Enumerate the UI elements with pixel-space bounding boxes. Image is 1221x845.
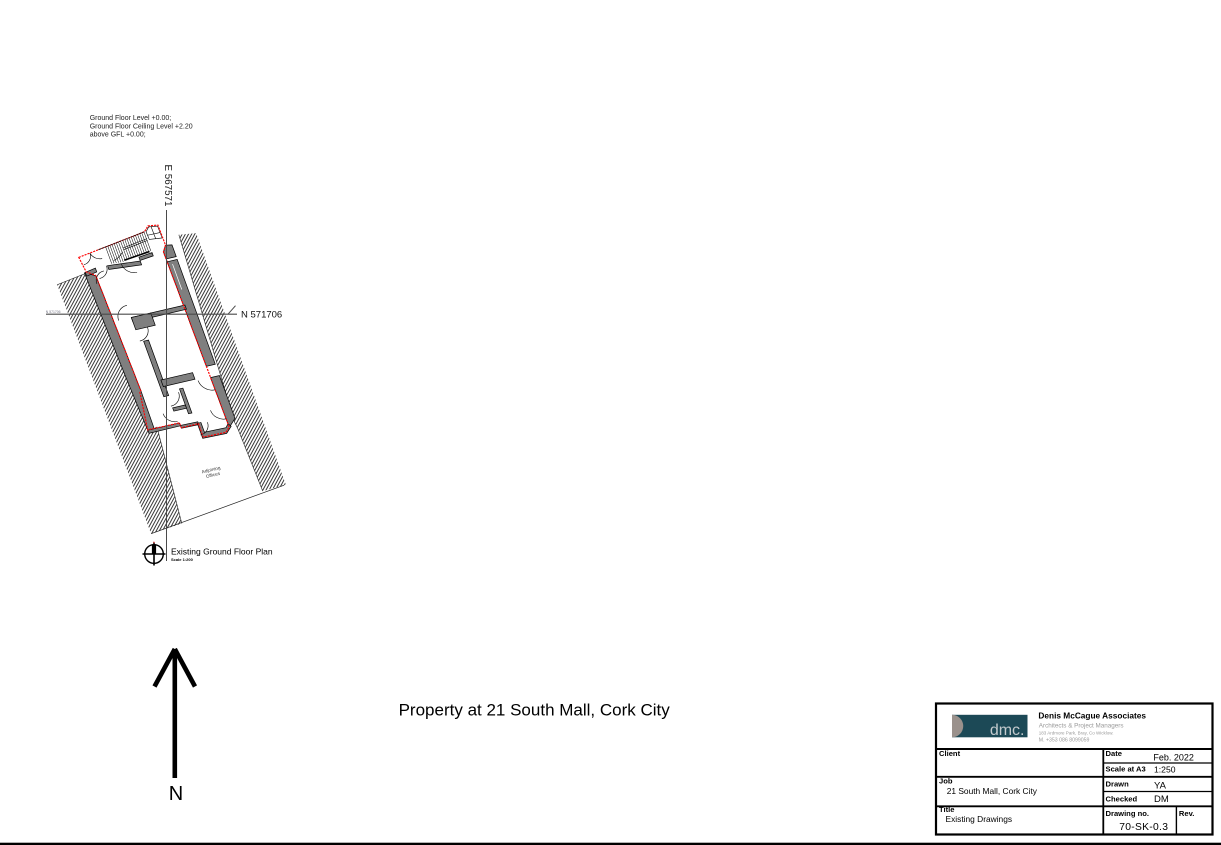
svg-text:Title: Title [939, 805, 954, 814]
svg-text:Existing Ground Floor Plan: Existing Ground Floor Plan [171, 547, 273, 557]
svg-text:Client: Client [939, 749, 961, 758]
svg-text:Ground Floor Level +0.00;: Ground Floor Level +0.00; [90, 115, 172, 122]
svg-text:Ground Floor Ceiling Level +2.: Ground Floor Ceiling Level +2.20 [90, 123, 193, 130]
svg-text:1:250: 1:250 [1154, 764, 1176, 774]
svg-text:Scale 1:200: Scale 1:200 [171, 557, 194, 562]
svg-text:above GFL +0.00;: above GFL +0.00; [90, 132, 146, 139]
svg-text:Feb. 2022: Feb. 2022 [1153, 753, 1194, 763]
svg-text:Drawing no.: Drawing no. [1106, 809, 1149, 818]
svg-text:Drawn: Drawn [1106, 780, 1130, 789]
svg-text:YA: YA [1154, 781, 1167, 792]
svg-text:70-SK-0.3: 70-SK-0.3 [1119, 822, 1168, 833]
svg-text:N 571706: N 571706 [46, 310, 61, 314]
svg-text:183 Ardmore Park, Bray, Co Wic: 183 Ardmore Park, Bray, Co Wicklow. [1039, 731, 1114, 736]
svg-text:E 567571: E 567571 [162, 165, 173, 207]
svg-text:Architects & Project Managers: Architects & Project Managers [1039, 722, 1124, 729]
svg-text:N: N [169, 783, 183, 805]
svg-text:N 571706: N 571706 [241, 310, 282, 321]
svg-text:Rev.: Rev. [1179, 809, 1194, 818]
svg-text:Checked: Checked [1106, 795, 1138, 804]
svg-text:Denis McCague Associates: Denis McCague Associates [1038, 711, 1146, 721]
svg-text:Property at 21 South Mall, Cor: Property at 21 South Mall, Cork City [399, 701, 671, 720]
svg-text:Scale at A3: Scale at A3 [1106, 765, 1146, 774]
svg-text:Existing Drawings: Existing Drawings [946, 814, 1013, 824]
svg-text:M. +353 086 8099059: M. +353 086 8099059 [1039, 737, 1090, 743]
svg-text:21 South Mall, Cork City: 21 South Mall, Cork City [947, 786, 1038, 796]
svg-text:Date: Date [1106, 749, 1122, 758]
svg-text:dmc.: dmc. [990, 722, 1025, 739]
svg-text:DM: DM [1154, 794, 1169, 805]
svg-text:Job: Job [939, 777, 953, 786]
